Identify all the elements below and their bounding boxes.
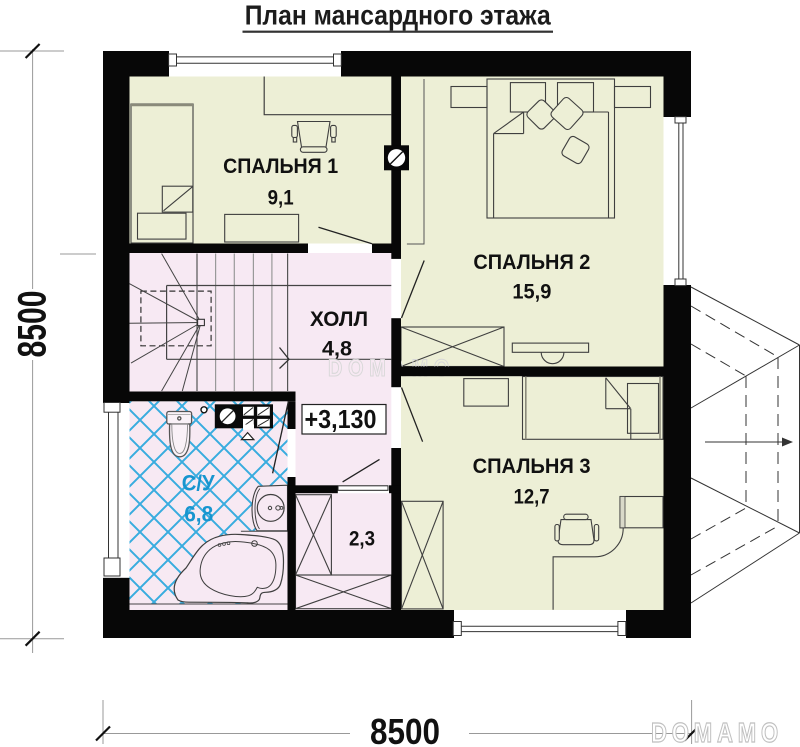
svg-text:С/У: С/У (182, 471, 215, 496)
svg-text:План мансардного этажа: План мансардного этажа (245, 0, 551, 31)
svg-text:8500: 8500 (11, 291, 55, 358)
svg-text:12,7: 12,7 (514, 485, 550, 509)
svg-text:9,1: 9,1 (268, 186, 294, 210)
svg-text:DOMAMO: DOMAMO (651, 717, 783, 747)
svg-text:2,3: 2,3 (349, 527, 375, 551)
svg-text:СПАЛЬНЯ 3: СПАЛЬНЯ 3 (473, 454, 591, 478)
svg-text:СПАЛЬНЯ 1: СПАЛЬНЯ 1 (223, 154, 338, 178)
svg-text:6,8: 6,8 (184, 502, 213, 527)
svg-text:ХОЛЛ: ХОЛЛ (310, 307, 368, 331)
svg-text:СПАЛЬНЯ 2: СПАЛЬНЯ 2 (473, 250, 590, 274)
svg-text:+3,130: +3,130 (305, 404, 377, 434)
svg-text:4,8: 4,8 (322, 337, 352, 361)
svg-text:8500: 8500 (370, 711, 440, 747)
svg-text:15,9: 15,9 (512, 280, 551, 304)
